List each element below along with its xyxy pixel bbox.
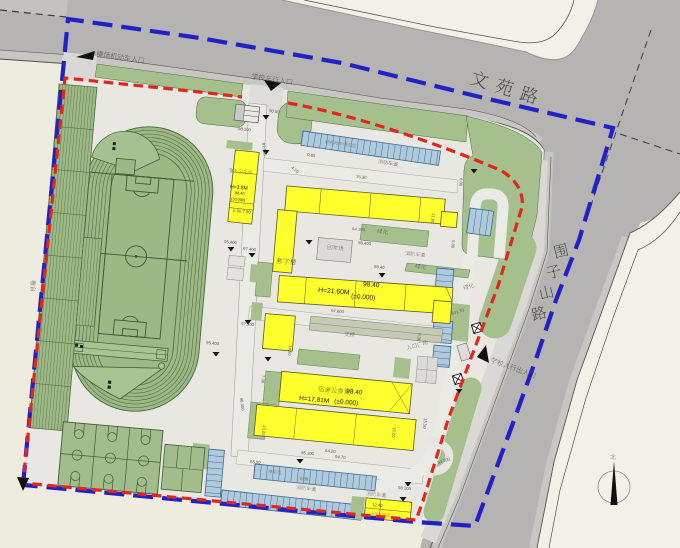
svg-text:55.90: 55.90 [250, 459, 262, 465]
svg-text:98.40: 98.40 [363, 281, 380, 289]
svg-text:94.70: 94.70 [335, 454, 347, 460]
svg-text:14.60: 14.60 [287, 345, 293, 357]
svg-text:5.00: 5.00 [450, 240, 456, 249]
svg-text:0.35: 0.35 [300, 476, 309, 482]
svg-text:6.00: 6.00 [458, 178, 464, 187]
svg-text:7.00: 7.00 [260, 375, 266, 384]
svg-text:13.20: 13.20 [261, 425, 267, 437]
svg-text:11.80: 11.80 [430, 213, 436, 224]
svg-text:15.50: 15.50 [422, 418, 428, 430]
svg-text:12.40: 12.40 [372, 502, 384, 508]
svg-text:98.40: 98.40 [374, 264, 386, 270]
svg-text:76.30: 76.30 [356, 174, 368, 180]
svg-text:15.20: 15.20 [391, 427, 397, 439]
svg-text:9.30: 9.30 [416, 333, 422, 342]
